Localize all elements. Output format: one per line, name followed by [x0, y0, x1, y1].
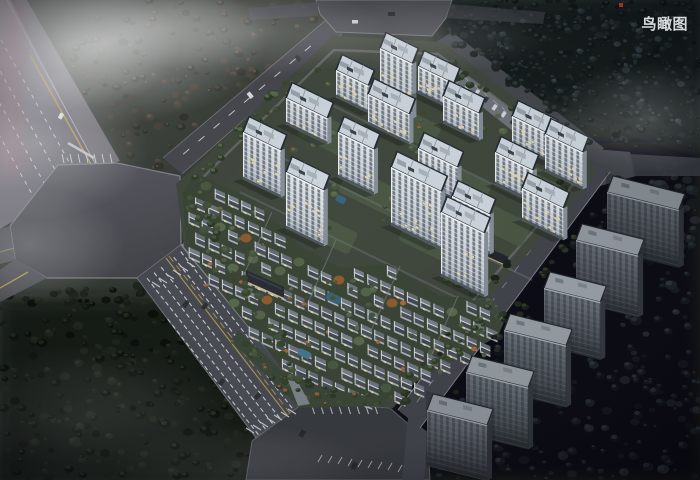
svg-text:鸟瞰图: 鸟瞰图 [641, 15, 688, 33]
